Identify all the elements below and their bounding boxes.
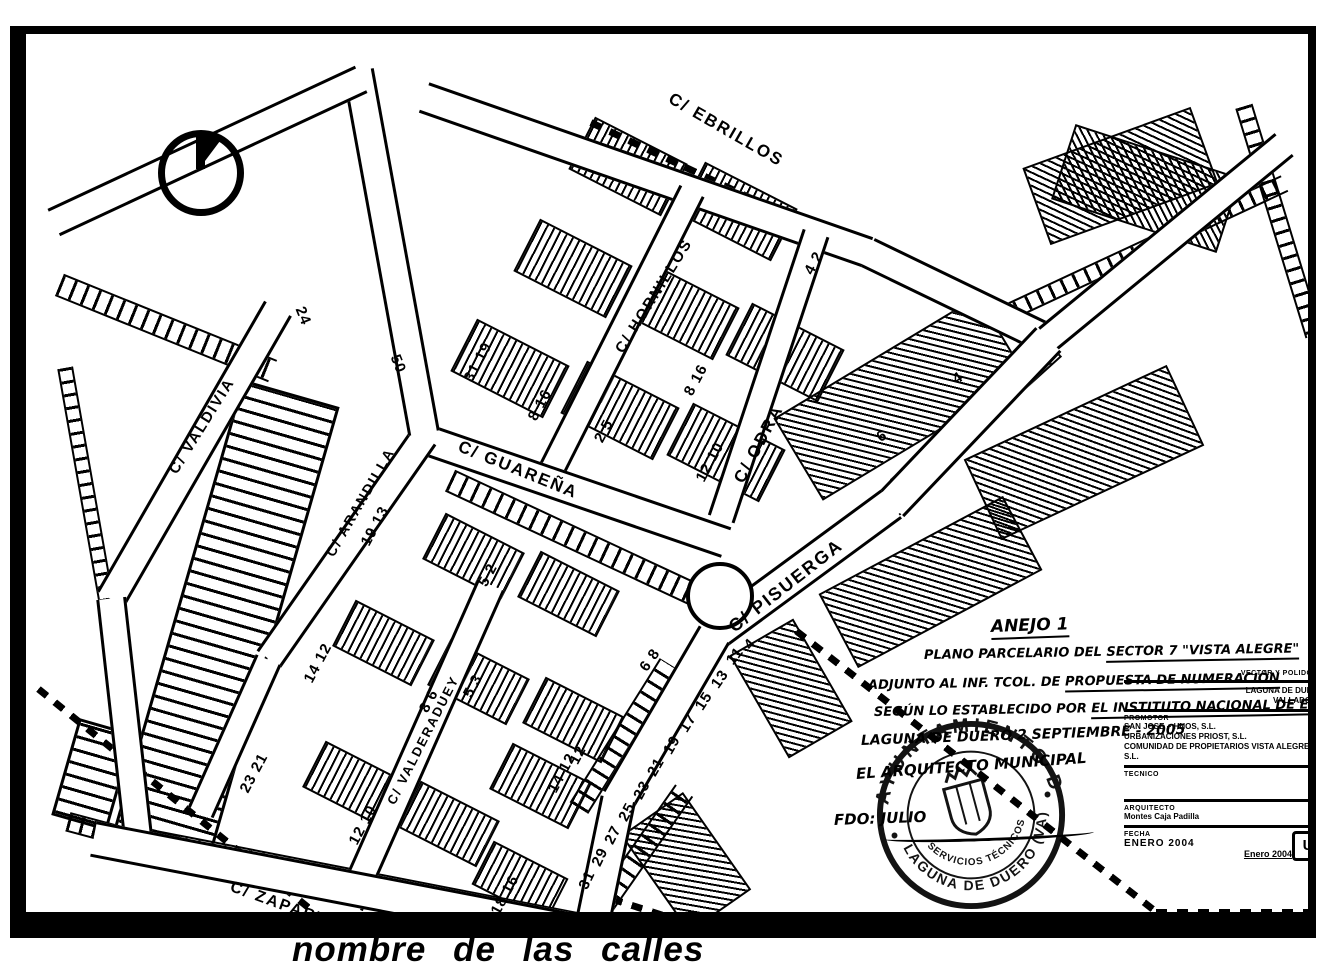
titleblock-municipality: LAGUNA DE DUERO — [1124, 686, 1316, 696]
titleblock-rule — [1124, 799, 1316, 802]
stamp-shield-icon — [939, 763, 995, 839]
north-arrow-icon — [158, 130, 244, 216]
annotation-anejo: ANEJO 1 — [991, 614, 1069, 637]
titleblock-company-2: URBANIZACIONES PRIOST, S.L. — [1124, 732, 1316, 742]
titleblock-architect-label: ARQUITECTO — [1124, 805, 1316, 812]
titleblock-company-3: COMUNIDAD DE PROPIETARIOS VISTA ALEGRE, … — [1124, 742, 1316, 762]
titleblock-architect-name: Montes Caja Padilla — [1124, 812, 1316, 822]
scanned-parcel-map: C/ EBRILLOSC/ HORNILLOSC/ ODRAC/ PISUERG… — [0, 0, 1332, 974]
house-block — [332, 600, 435, 687]
titleblock-date-main: ENERO 2004 — [1124, 838, 1316, 849]
house-number-label: 23 21 — [237, 750, 272, 796]
house-block — [513, 218, 632, 318]
titleblock-spacer — [1124, 778, 1316, 796]
titleblock-tecnico-label: TECNICO — [1124, 771, 1316, 778]
annotation-line1-underlined: SECTOR 7 "VISTA ALEGRE" — [1106, 641, 1299, 662]
boundary-dashed-line — [1156, 909, 1316, 916]
house-number-label: 24 — [292, 304, 315, 328]
titleblock-rule — [1124, 825, 1316, 828]
parking-ladder-strip — [57, 366, 114, 605]
house-number-label: 8 16 — [681, 361, 712, 398]
titleblock-promotor-label: PROMOTOR — [1124, 715, 1316, 722]
street-road — [342, 68, 439, 436]
house-number-label: 14 12 — [301, 640, 336, 686]
titleblock-date-label: FECHA — [1124, 831, 1316, 838]
u-logo: U — [1292, 831, 1316, 861]
titleblock-company-1: SAN JOSE + HNOS, S.L. — [1124, 722, 1316, 732]
title-block: VECTOR Y POLIDORO LAGUNA DE DUERO VALLAD… — [1124, 670, 1316, 861]
north-arrow-bar — [196, 135, 205, 169]
annotation-line1-prefix: PLANO PARCELARIO DEL — [924, 645, 1102, 663]
north-arrow-wedge — [205, 137, 223, 161]
titleblock-province: VALLADOLID — [1124, 696, 1316, 706]
map-frame: C/ EBRILLOSC/ HORNILLOSC/ ODRAC/ PISUERG… — [10, 26, 1316, 938]
street-names-caption: nombre de las calles — [292, 930, 704, 970]
street-name-label: C/ EBRILLOS — [665, 89, 787, 171]
titleblock-date-secondary: Enero 2004 — [1124, 849, 1316, 859]
titleblock-rule — [1124, 765, 1316, 768]
titleblock-small-print: VECTOR Y POLIDORO — [1124, 670, 1316, 677]
titleblock-rule — [1124, 709, 1316, 712]
titleblock-rule — [1124, 680, 1316, 683]
annotation-anejo-text: ANEJO 1 — [991, 614, 1069, 640]
